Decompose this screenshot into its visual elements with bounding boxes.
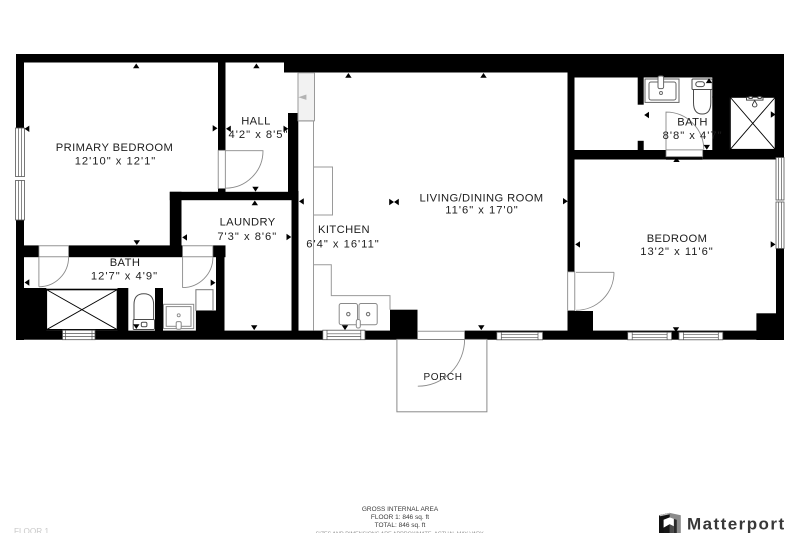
svg-text:TOTAL: 846 sq. ft: TOTAL: 846 sq. ft [375,522,426,529]
svg-text:BEDROOM: BEDROOM [647,233,708,245]
svg-text:12'10" x 12'1": 12'10" x 12'1" [75,156,157,168]
svg-text:FLOOR 1: FLOOR 1 [14,527,49,533]
svg-text:13'2" x 11'6": 13'2" x 11'6" [640,246,714,258]
svg-text:PRIMARY BEDROOM: PRIMARY BEDROOM [56,142,173,154]
svg-text:7'3" x 8'6": 7'3" x 8'6" [217,231,277,243]
svg-text:4'2" x 8'5": 4'2" x 8'5" [229,129,289,141]
svg-text:BATH: BATH [677,117,708,129]
svg-text:12'7" x 4'9": 12'7" x 4'9" [91,271,158,283]
svg-text:LIVING/DINING ROOM: LIVING/DINING ROOM [419,193,543,205]
svg-text:Matterport: Matterport [687,515,786,533]
svg-text:BATH: BATH [110,257,141,269]
svg-text:6'4" x 16'11": 6'4" x 16'11" [306,239,380,251]
svg-text:PORCH: PORCH [423,372,462,383]
svg-text:FLOOR 1: 846 sq. ft: FLOOR 1: 846 sq. ft [371,514,429,521]
svg-text:GROSS INTERNAL AREA: GROSS INTERNAL AREA [362,506,439,513]
svg-text:HALL: HALL [241,116,271,128]
svg-text:8'8" x 4'7": 8'8" x 4'7" [663,130,723,142]
svg-text:LAUNDRY: LAUNDRY [220,217,276,229]
svg-text:KITCHEN: KITCHEN [318,224,370,236]
svg-text:11'6" x 17'0": 11'6" x 17'0" [445,205,519,217]
